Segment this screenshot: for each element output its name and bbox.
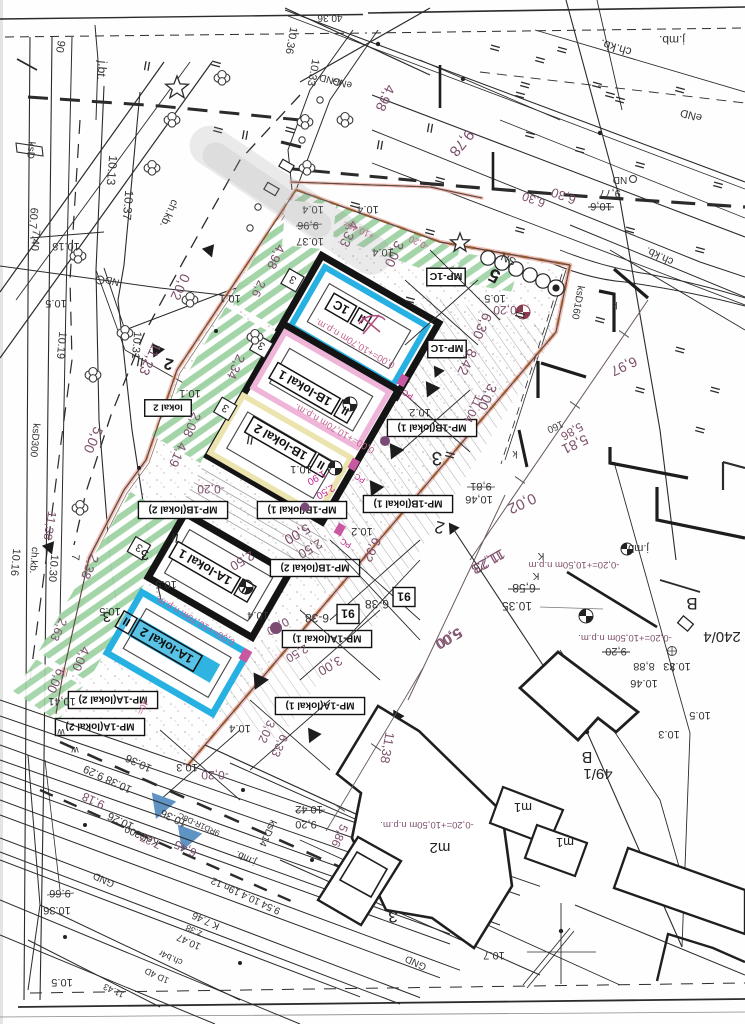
- svg-text:91: 91: [341, 607, 355, 621]
- svg-text:B: B: [686, 594, 697, 613]
- svg-text:91: 91: [397, 590, 411, 604]
- svg-text:7.40: 7.40: [28, 229, 42, 251]
- svg-text:9,20: 9,20: [295, 818, 316, 830]
- svg-text:10.1: 10.1: [219, 292, 240, 304]
- svg-text:6-38: 6-38: [365, 597, 389, 611]
- svg-text:10.35: 10.35: [502, 599, 532, 613]
- svg-text:ksD: ksD: [24, 141, 36, 159]
- svg-text:10,46: 10,46: [465, 493, 493, 505]
- svg-text:90: 90: [53, 39, 67, 53]
- svg-text:10.5: 10.5: [155, 578, 176, 590]
- svg-text:ND: ND: [613, 174, 627, 185]
- svg-text:60.7: 60.7: [26, 207, 40, 229]
- svg-text:10.5: 10.5: [45, 297, 66, 309]
- svg-text:10.1: 10.1: [290, 463, 311, 475]
- svg-text:9.66: 9.66: [49, 887, 70, 899]
- svg-text:MP-1C: MP-1C: [429, 270, 462, 282]
- svg-text:MP-1C: MP-1C: [430, 342, 463, 354]
- svg-text:10.1: 10.1: [179, 387, 200, 399]
- svg-text:8,88: 8,88: [633, 660, 654, 672]
- svg-text:K: K: [537, 550, 544, 561]
- svg-text:10.13: 10.13: [104, 155, 121, 186]
- svg-text:10.3: 10.3: [658, 728, 679, 740]
- svg-text:j.bt.: j.bt.: [94, 59, 110, 80]
- svg-text:m2: m2: [430, 839, 451, 856]
- svg-text:10.46: 10.46: [630, 677, 658, 689]
- svg-text:9,81: 9,81: [470, 480, 491, 492]
- svg-text:3: 3: [141, 546, 149, 563]
- svg-text:10.5: 10.5: [51, 976, 72, 988]
- svg-text:10.31: 10.31: [129, 331, 143, 359]
- svg-text:-0,20=+10,50m n.p.m.: -0,20=+10,50m n.p.m.: [380, 819, 473, 830]
- svg-text:6,58: 6,58: [512, 581, 536, 595]
- svg-text:6-38: 6-38: [305, 611, 329, 625]
- svg-text:m1: m1: [556, 835, 574, 850]
- svg-text:9,77: 9,77: [599, 187, 620, 199]
- svg-text:MP-1A(lokal 2): MP-1A(lokal 2): [79, 693, 148, 704]
- svg-text:-0,20: -0,20: [493, 303, 521, 317]
- svg-text:-0,20=+10,50m n.p.m.: -0,20=+10,50m n.p.m.: [578, 632, 671, 643]
- svg-text:10.2: 10.2: [351, 525, 372, 537]
- svg-text:240/4: 240/4: [703, 628, 741, 645]
- svg-text:40.36: 40.36: [317, 12, 342, 23]
- svg-text:m1: m1: [514, 800, 532, 815]
- svg-text:-0,20: -0,20: [201, 768, 229, 782]
- svg-text:7: 7: [69, 554, 81, 561]
- svg-text:10.4: 10.4: [247, 609, 268, 621]
- svg-text:10.7: 10.7: [483, 949, 504, 961]
- svg-text:10.4: 10.4: [229, 722, 250, 734]
- svg-text:10.5: 10.5: [99, 605, 120, 617]
- svg-text:10.3: 10.3: [176, 761, 197, 773]
- svg-text:10.4: 10.4: [357, 203, 378, 215]
- svg-text:9,20: 9,20: [605, 645, 626, 657]
- svg-text:-0,20: -0,20: [197, 482, 225, 496]
- svg-text:10.5: 10.5: [689, 709, 710, 721]
- svg-text:10.18: 10.18: [52, 240, 80, 252]
- svg-text:10.16: 10.16: [8, 548, 22, 576]
- svg-text:10.19: 10.19: [54, 331, 68, 359]
- svg-text:3: 3: [432, 447, 443, 468]
- svg-text:10.37: 10.37: [120, 190, 137, 221]
- svg-text:10.33: 10.33: [663, 660, 691, 672]
- svg-text:MP-1B(lokal 1): MP-1B(lokal 1): [374, 497, 443, 508]
- svg-text:10,41: 10,41: [48, 695, 76, 707]
- svg-text:3: 3: [388, 907, 397, 926]
- svg-text:w: w: [57, 726, 66, 737]
- svg-text:ch.kb.: ch.kb.: [27, 546, 40, 574]
- svg-text:10.36: 10.36: [43, 904, 71, 916]
- svg-text:j.mb.: j.mb.: [659, 33, 686, 47]
- svg-text:B: B: [582, 748, 593, 765]
- svg-text:MP-1B(lokal 2): MP-1B(lokal 2): [149, 503, 218, 514]
- svg-text:MP-1B(lokal 1): MP-1B(lokal 1): [398, 421, 467, 432]
- svg-text:10,6: 10,6: [590, 200, 611, 212]
- svg-text:10.42: 10.42: [295, 803, 323, 815]
- svg-text:10.5: 10.5: [484, 292, 505, 304]
- svg-text:K: K: [532, 570, 539, 581]
- svg-text:10.30: 10.30: [46, 554, 60, 582]
- svg-text:10.2: 10.2: [409, 406, 430, 418]
- svg-text:lokal 2: lokal 2: [153, 402, 183, 413]
- svg-text:MP-1B(lokal 2): MP-1B(lokal 2): [281, 561, 350, 572]
- svg-text:w: w: [71, 744, 80, 755]
- svg-text:49/1: 49/1: [583, 765, 612, 782]
